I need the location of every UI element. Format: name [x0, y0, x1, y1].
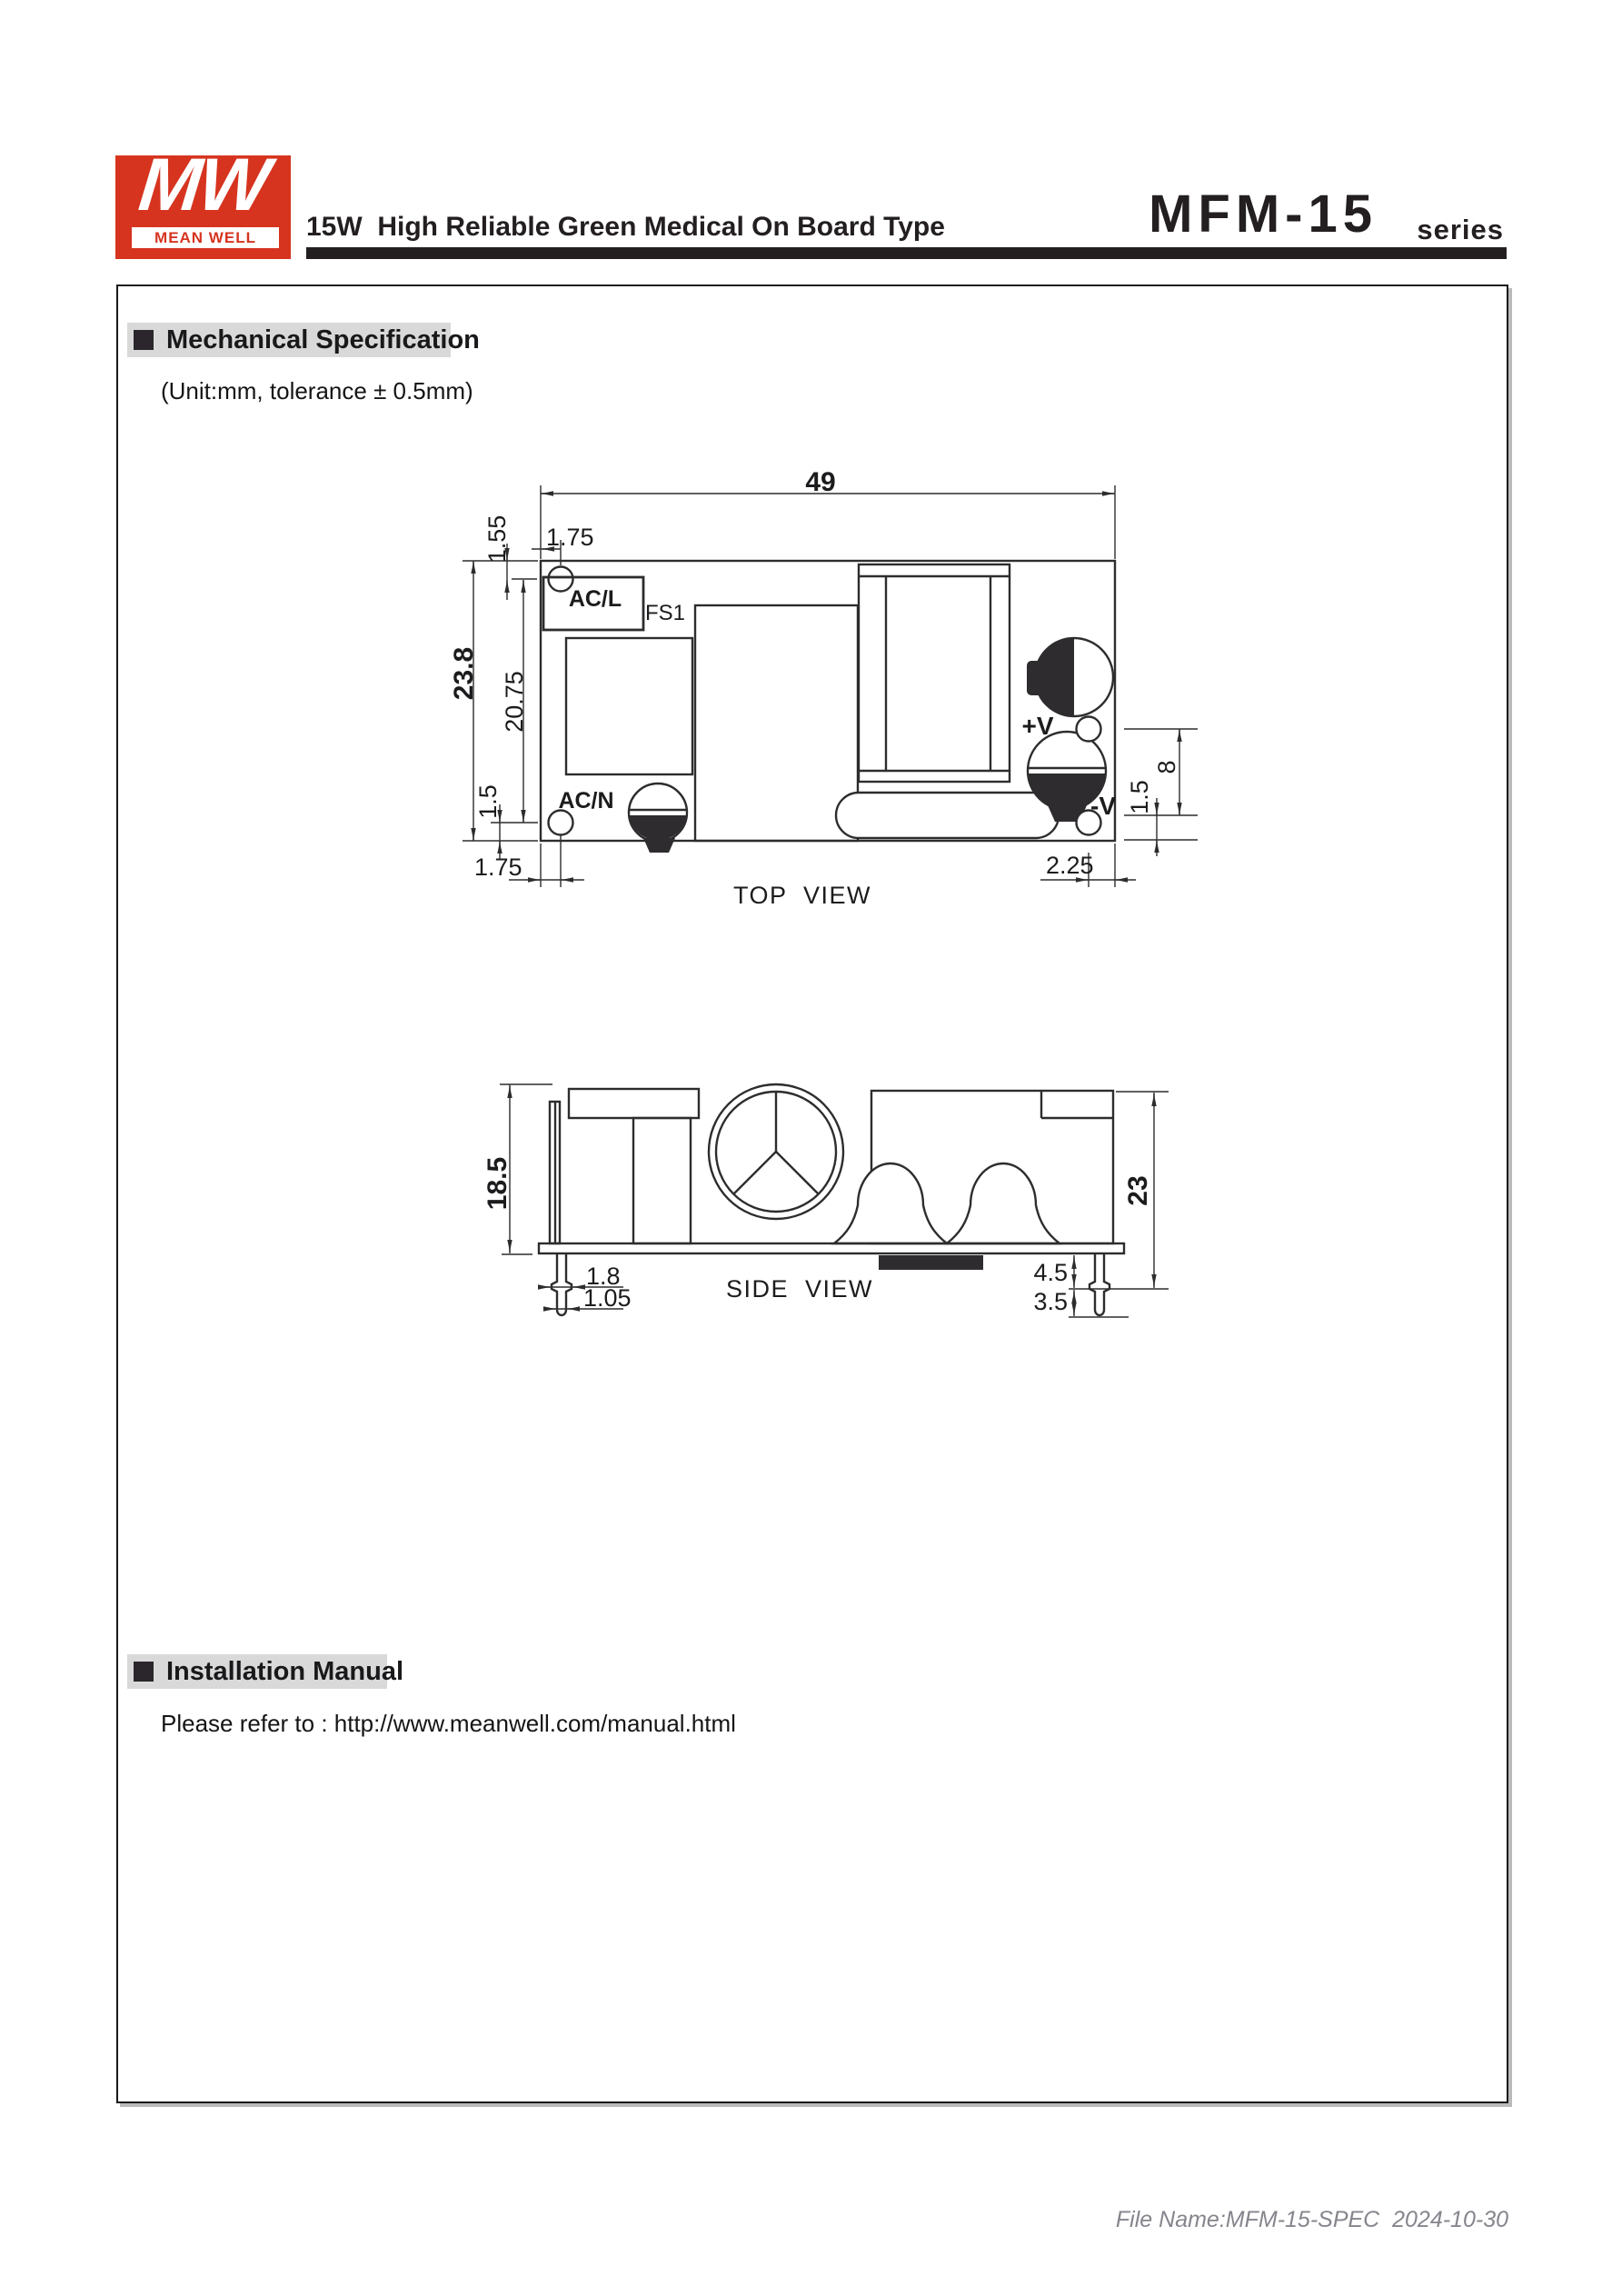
dim-hole-bottom-offset: 1.5 [474, 784, 502, 819]
label-v-minus: -V [1090, 792, 1116, 820]
meanwell-logo: MW MEAN WELL [115, 155, 291, 259]
label-ac-n: AC/N [558, 788, 613, 814]
brand-name: MEAN WELL [132, 227, 279, 248]
dim-pin-tip-length: 3.5 [1033, 1288, 1068, 1315]
inductor-pill [836, 793, 1059, 838]
dim-bottom-hole-left-offset: 1.75 [474, 854, 522, 881]
side-capacitor-face [709, 1084, 843, 1219]
side-view-drawing: 18.5 23 1.8 1.05 4.5 3.5 SIDE VIEW [483, 1084, 1169, 1317]
dim-output-hole-span: 8 [1153, 760, 1180, 774]
mw-monogram-icon: MW [112, 148, 295, 223]
label-v-plus: +V [1021, 712, 1053, 740]
side-core-block [633, 1118, 691, 1243]
label-fs1: FS1 [645, 601, 685, 625]
dim-hole-span: 20.75 [501, 671, 528, 733]
dim-output-hole-bottom-offset: 1.5 [1126, 780, 1153, 814]
capacitor-bottom-left [629, 784, 687, 853]
top-view-caption: TOP VIEW [733, 882, 871, 909]
side-view-caption: SIDE VIEW [726, 1275, 873, 1303]
page-title: 15W High Reliable Green Medical On Board… [306, 212, 945, 243]
pin-left [552, 1253, 572, 1315]
side-left-bracket [550, 1102, 560, 1243]
series-model: MFM-15 [1149, 188, 1378, 241]
file-name-footer: File Name:MFM-15-SPEC 2024-10-30 [1116, 2207, 1508, 2233]
side-top-block [569, 1089, 699, 1118]
title-rule [306, 247, 1507, 259]
output-transformer [859, 564, 1010, 782]
pcb-outline-side [539, 1243, 1124, 1253]
datasheet-page: MW MEAN WELL 15W High Reliable Green Med… [0, 0, 1622, 2296]
dim-component-height: 18.5 [483, 1157, 512, 1210]
mechanical-drawing: AC/L FS1 AC/N +V -V [118, 286, 1507, 2101]
pcb-bottom-pad [879, 1255, 983, 1270]
section-heading-installation: Installation Manual [166, 1657, 403, 1687]
center-transformer [695, 605, 858, 841]
side-bulb-right [947, 1163, 1060, 1243]
installation-manual-note: Please refer to : http://www.meanwell.co… [161, 1710, 736, 1738]
dim-overall-height: 23 [1123, 1175, 1153, 1205]
dim-output-hole-right-offset: 2.25 [1046, 852, 1094, 879]
hole-ac-n [549, 811, 573, 835]
input-component [566, 638, 692, 774]
dim-pin-shoulder-length: 4.5 [1033, 1259, 1068, 1286]
dim-hole-left-offset: 1.75 [546, 524, 594, 551]
section-header-installation: Installation Manual [127, 1654, 387, 1689]
top-view-drawing: AC/L FS1 AC/N +V -V [449, 467, 1198, 909]
hole-v-plus [1077, 717, 1101, 742]
series-suffix: series [1417, 215, 1504, 244]
content-box: Mechanical Specification (Unit:mm, toler… [116, 285, 1508, 2103]
dim-hole-top-offset: 1.55 [483, 515, 511, 564]
dim-board-width: 49 [805, 467, 835, 497]
side-bulb-left [834, 1163, 947, 1243]
capacitor-output-top [1027, 638, 1113, 716]
square-bullet-icon [134, 1662, 154, 1682]
dim-pin-tip-width: 1.05 [583, 1284, 632, 1312]
label-ac-l: AC/L [569, 586, 622, 612]
dim-board-height: 23.8 [449, 647, 479, 700]
pin-right [1090, 1253, 1110, 1315]
